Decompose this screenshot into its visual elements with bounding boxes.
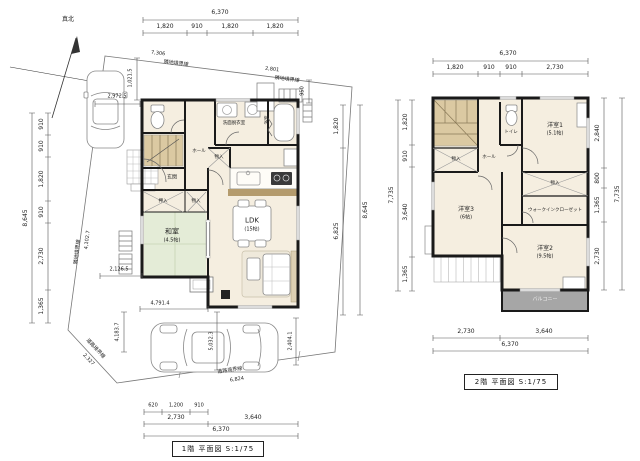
dim-f2-top-seg1: 1,820 (446, 65, 463, 71)
car-bottom-icon (151, 323, 278, 372)
floor1-title-text: 1階 平面図 S:1/75 (182, 444, 254, 454)
dim-site-car-top: 2,972.5 (107, 95, 126, 100)
dim-f2-right-seg2: 800 (595, 172, 601, 183)
north-label: 真北 (62, 17, 74, 23)
dim-f2-right-seg3: 1,365 (595, 196, 601, 213)
dim-f1-top-seg3: 1,820 (221, 24, 238, 30)
room-f1-hall: ホール (192, 150, 206, 155)
room-f2-monoire-b: 物入 (551, 182, 560, 187)
dim-f1-left-seg5: 2,730 (39, 247, 45, 264)
dim-f2-bot-seg1: 2,730 (457, 329, 474, 335)
room-f1-bath: 浴室 (266, 116, 271, 125)
dim-f1-right-total: 8,645 (363, 201, 369, 218)
dim-f1-left-seg6: 1,365 (39, 297, 45, 314)
room-f1-monoire-a: 物入 (192, 200, 201, 205)
room-f1-washitsu: 和室 (165, 229, 179, 236)
dim-f1-left-seg1: 910 (39, 118, 45, 129)
room-f1-genkan: 玄関 (167, 176, 177, 181)
dim-f1-bot-total: 6,370 (212, 427, 229, 433)
room-f2-yoshitsu2: 洋室2 (537, 246, 553, 252)
room-f2-monoire-a: 物入 (452, 158, 461, 163)
dim-f1-right-seg1: 1,820 (334, 117, 340, 134)
dim-f2-top-seg2: 910 (483, 65, 494, 71)
room-f2-yoshitsu3-size: (6帖) (460, 216, 472, 221)
dim-site-bottom-right: 2,404.1 (289, 331, 294, 350)
room-f2-yoshitsu1-size: (5.1帖) (547, 132, 564, 137)
dim-f2-left-total: 7,735 (389, 186, 395, 203)
dim-f2-left-seg3: 3,640 (403, 203, 409, 220)
car-top-icon (84, 71, 127, 148)
room-f1-oshiire: 押入 (159, 200, 168, 205)
dim-site-left-mid: 2,126.5 (109, 268, 128, 273)
floor1-title: 1階 平面図 S:1/75 (172, 441, 264, 457)
dim-f1-bot-s2: 1,200 (169, 404, 183, 409)
room-f2-hall: ホール (482, 156, 496, 161)
room-f2-yoshitsu1: 洋室1 (547, 123, 563, 129)
dim-site-bottom-left: 4,183.7 (116, 322, 121, 341)
dim-f1-approach-offset: 1,021.5 (129, 68, 134, 87)
room-f1-ldk: LDK (245, 218, 259, 225)
dim-f2-top-seg4: 2,730 (546, 65, 563, 71)
floorplan-linework (0, 0, 640, 461)
room-f1-washitsu-size: (4.5帖) (164, 239, 181, 244)
room-f2-balcony: バルコニー (533, 298, 558, 303)
floor2-title: 2階 平面図 S:1/75 (464, 374, 558, 390)
dim-f1-left-seg4: 910 (39, 206, 45, 217)
floorplan-canvas: 真北 6,370 1,820 910 1,820 1,820 620 1,200… (0, 0, 640, 461)
dim-f1-left-seg3: 1,820 (39, 170, 45, 187)
floor2-stairs (434, 100, 478, 146)
dim-f2-top-total: 6,370 (499, 51, 516, 57)
room-f2-yoshitsu2-size: (9.5帖) (537, 255, 554, 260)
dim-f2-right-total: 7,735 (615, 185, 621, 202)
dim-f2-right-seg4: 2,730 (595, 247, 601, 264)
dim-f1-left-seg2: 910 (39, 140, 45, 151)
dim-f1-right-seg2: 6,825 (334, 222, 340, 239)
dim-f1-top-seg1: 1,820 (156, 24, 173, 30)
dim-f2-left-seg4: 1,365 (403, 265, 409, 282)
room-f1-senmen: 洗面脱衣室 (223, 122, 246, 127)
north-arrow-icon (10, 36, 95, 118)
dim-f1-top-total: 6,370 (211, 10, 228, 16)
dim-f2-left-seg2: 910 (403, 150, 409, 161)
dim-f2-top-seg3: 910 (505, 65, 516, 71)
room-f1-ldk-size: (15帖) (244, 228, 259, 233)
room-f2-wic: ウォークインクローゼット (528, 209, 582, 214)
dim-site-bottom-mid: 5,032.3 (210, 331, 215, 350)
dim-f2-bot-seg2: 3,640 (535, 329, 552, 335)
dim-site-bottom-top: 4,791.4 (150, 302, 169, 307)
room-f1-monoire-b: 物入 (215, 156, 224, 161)
room-f2-toilet: トイレ (504, 131, 518, 136)
dim-f1-bot-s1: 620 (148, 404, 158, 409)
dim-f1-left-total: 8,645 (23, 209, 29, 226)
dim-f2-bot-total: 6,370 (501, 342, 518, 348)
room-f2-yoshitsu3: 洋室3 (458, 207, 474, 213)
dim-f1-top-seg2: 910 (191, 24, 202, 30)
dim-f1-bot-m2: 3,640 (244, 415, 261, 421)
dim-f1-top-seg4: 1,820 (266, 24, 283, 30)
dim-f1-bot-s3: 910 (194, 404, 204, 409)
floor1-stairs (144, 135, 183, 166)
dim-f2-right-seg1: 2,840 (595, 124, 601, 141)
floor2-title-text: 2階 平面図 S:1/75 (475, 377, 547, 387)
dim-f1-bath-offset: 950 (301, 86, 306, 96)
dim-f1-bot-m1: 2,730 (167, 415, 184, 421)
dim-f2-left-seg1: 1,820 (403, 113, 409, 130)
